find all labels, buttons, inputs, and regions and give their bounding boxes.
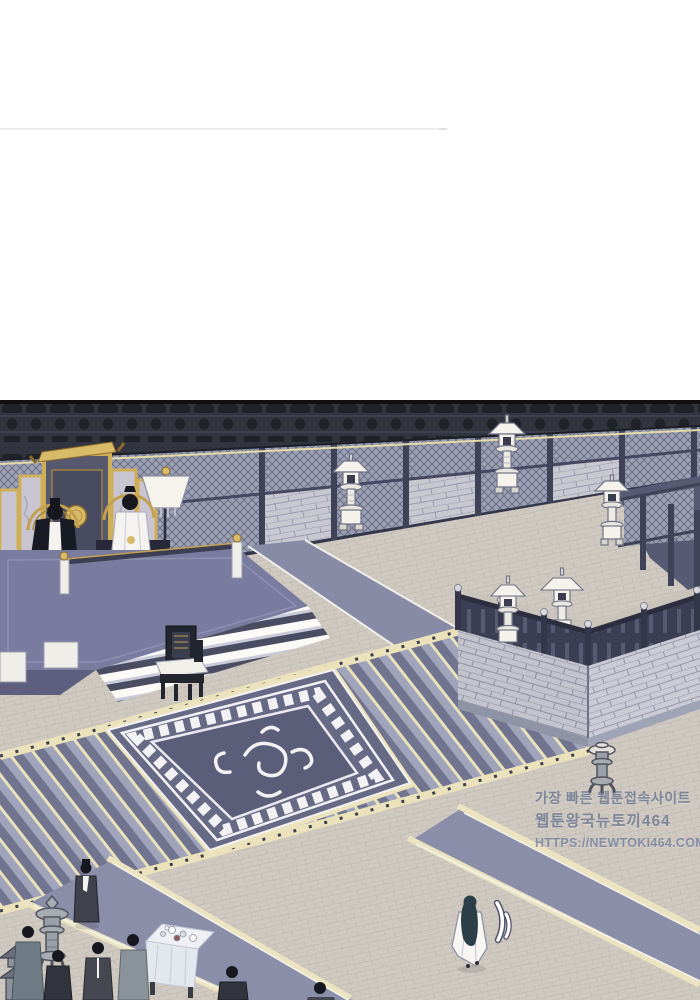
comic-panel-image[interactable]: 가장 빠른 웹툰접속사이트 웹툰왕국뉴토끼464 HTTPS://NEWTOKI… xyxy=(0,400,700,1000)
webtoon-reader-page: { "watermark": { "line1": "가장 빠른 웹툰접속사이트… xyxy=(0,0,700,1000)
previous-page-gap xyxy=(0,0,700,400)
page-divider xyxy=(0,128,447,130)
panel-top-border xyxy=(0,400,700,404)
palace-hall-illustration xyxy=(0,400,700,1000)
